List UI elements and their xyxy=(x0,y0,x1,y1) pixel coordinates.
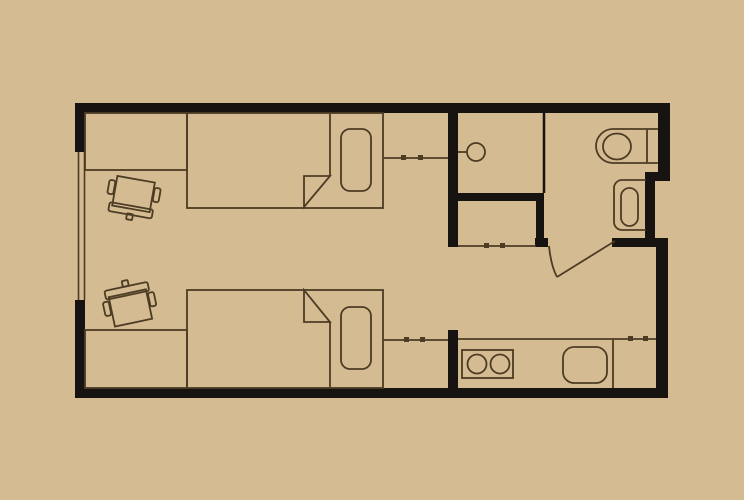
wardrobe-bottom-handle-1 xyxy=(404,337,409,342)
wall-left-lower xyxy=(75,300,85,398)
wall-bottom xyxy=(75,388,668,398)
wardrobe-bottom-handle-2 xyxy=(420,337,425,342)
closet-handle-1 xyxy=(484,243,489,248)
kitchen-cabinet-handle-2 xyxy=(643,336,648,341)
wall-bathroom-right xyxy=(645,172,655,247)
floorplan-drawing xyxy=(0,0,744,500)
wall-core xyxy=(448,103,458,247)
wardrobe-top-handle-2 xyxy=(418,155,423,160)
wall-kitchen-stub xyxy=(448,330,458,388)
wall-closet-right xyxy=(536,193,544,238)
wardrobe-top-handle-1 xyxy=(401,155,406,160)
kitchen-cabinet-handle-1 xyxy=(628,336,633,341)
wall-right-lower xyxy=(656,238,668,398)
wall-left-upper xyxy=(75,103,85,152)
wall-right-upper xyxy=(658,103,670,181)
floorplan-canvas xyxy=(0,0,744,500)
wall-top xyxy=(75,103,670,113)
closet-handle-2 xyxy=(500,243,505,248)
floor-background xyxy=(0,0,744,500)
wall-door-jamb xyxy=(535,238,548,247)
wall-closet-top xyxy=(448,193,544,201)
